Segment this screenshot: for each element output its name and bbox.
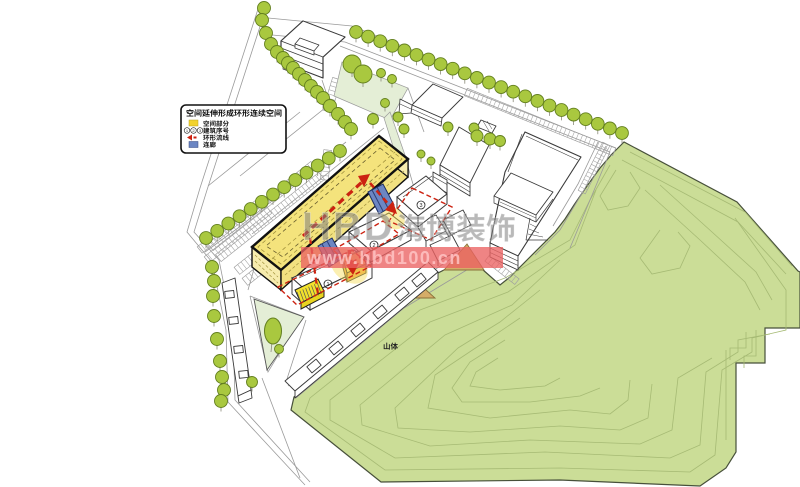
svg-text:HBD: HBD: [302, 205, 395, 249]
svg-text:www.hbd100.cn: www.hbd100.cn: [306, 248, 462, 268]
svg-text:1: 1: [326, 282, 329, 288]
svg-text:3: 3: [419, 203, 422, 209]
